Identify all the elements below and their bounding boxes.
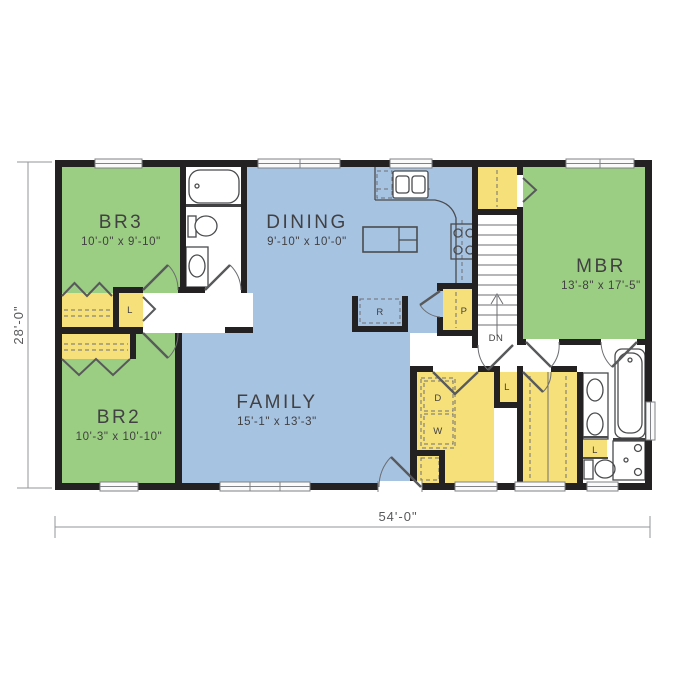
hall-linen-label: L <box>127 305 133 316</box>
family-label: FAMILY <box>236 392 317 413</box>
room-mbr <box>523 167 645 339</box>
dining-size: 9'-10" x 10'-0" <box>267 236 347 248</box>
dining-label: DINING <box>266 212 348 233</box>
width-dimension: 54'-0" <box>378 509 417 524</box>
mbr-size: 13'-8" x 17'-5" <box>561 280 641 292</box>
exterior-wall-left <box>55 160 62 490</box>
br2-size: 10'-3" x 10'-10" <box>76 431 163 443</box>
vanity-line <box>583 436 608 438</box>
bathtub <box>189 170 239 203</box>
pantry-label: P <box>461 306 468 317</box>
utility-linen-label: L <box>504 382 510 393</box>
bath-linen-label: L <box>592 445 598 456</box>
br2-label: BR2 <box>97 407 141 428</box>
toilet-tank-2 <box>584 460 593 479</box>
washer-label: W <box>433 426 442 437</box>
pantry <box>443 289 472 330</box>
toilet-bowl <box>195 216 217 236</box>
floor-plan-page: BR3 10'-0" x 9'-10" DINING 9'-10" x 10'-… <box>0 0 700 700</box>
br2-closet <box>62 334 130 359</box>
br3-size: 10'-0" x 9'-10" <box>81 236 161 248</box>
walk-in-closet <box>523 372 577 483</box>
br3-label: BR3 <box>99 212 143 233</box>
stairs-down-label: DN <box>489 333 504 344</box>
family-size: 15'-1" x 13'-3" <box>237 416 317 428</box>
floor-plan-drawing: BR3 10'-0" x 9'-10" DINING 9'-10" x 10'-… <box>0 0 700 700</box>
toilet-bowl-2 <box>595 460 615 478</box>
exterior-wall-top <box>55 160 652 167</box>
depth-dimension: 28'-0" <box>11 305 26 344</box>
dryer-label: D <box>434 393 441 404</box>
kitchen-sink <box>393 171 428 198</box>
double-vanity <box>583 373 608 439</box>
refrigerator-label: R <box>376 307 383 318</box>
tub-wall-line <box>186 204 241 207</box>
linen-line <box>583 457 608 459</box>
mbr-label: MBR <box>576 256 626 277</box>
